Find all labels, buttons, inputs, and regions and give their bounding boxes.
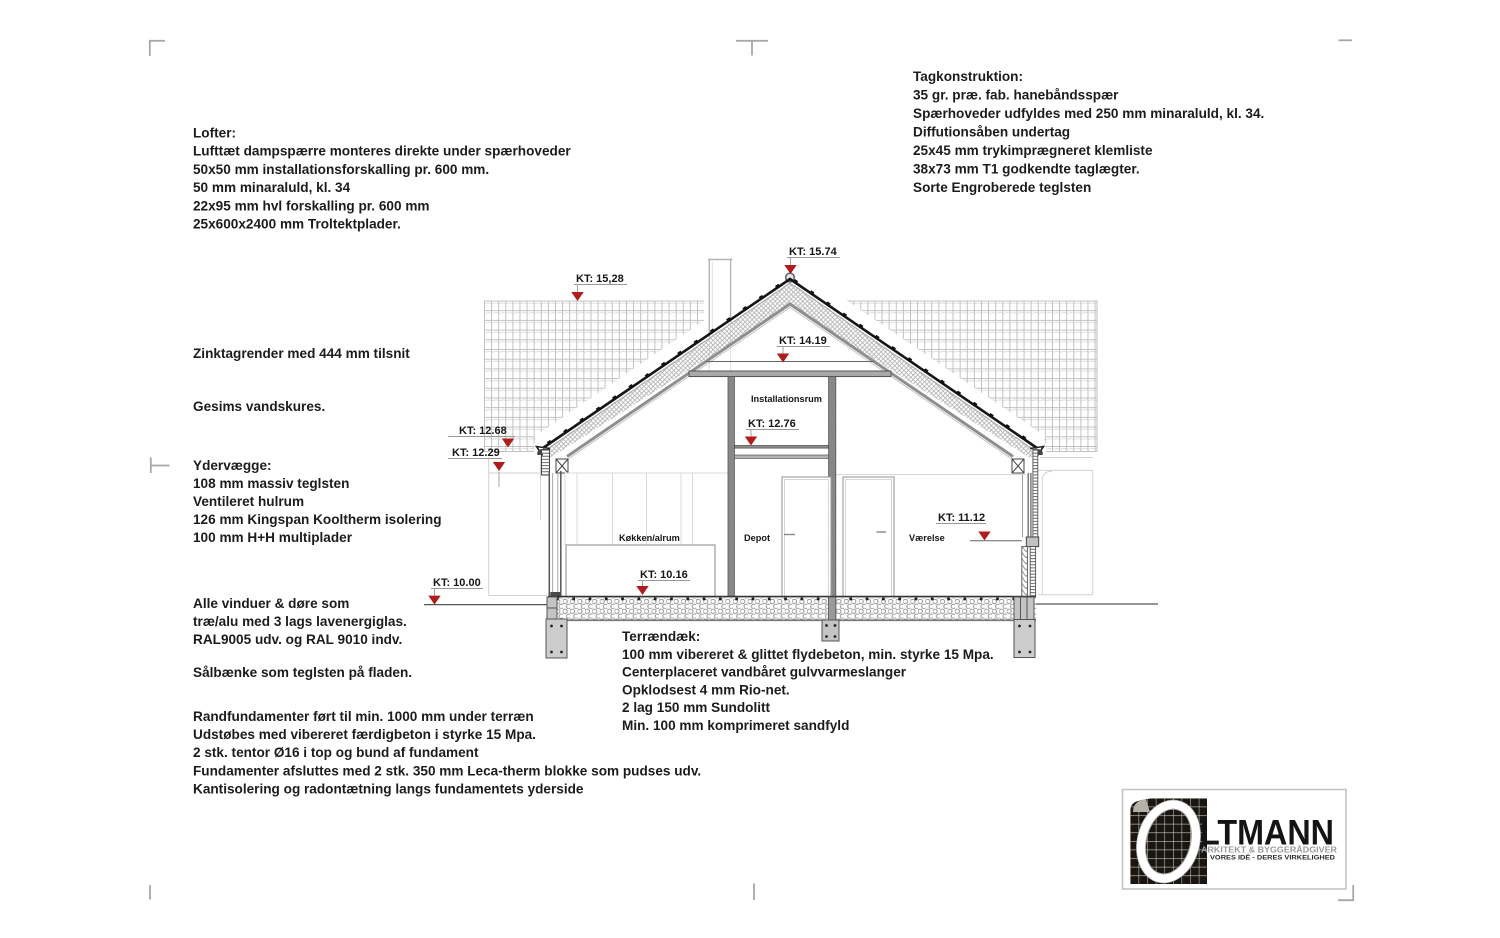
svg-text:35 gr. præ. fab. hanebåndsspær: 35 gr. præ. fab. hanebåndsspær xyxy=(913,88,1119,103)
svg-text:126 mm Kingspan Kooltherm isol: 126 mm Kingspan Kooltherm isolering xyxy=(193,512,442,527)
svg-text:Alle vinduer & døre som: Alle vinduer & døre som xyxy=(193,596,349,611)
svg-text:Spærhoveder udfyldes med 250 m: Spærhoveder udfyldes med 250 mm minaralu… xyxy=(913,106,1264,121)
svg-text:100 mm vibereret & glittet fly: 100 mm vibereret & glittet flydebeton, m… xyxy=(622,647,994,662)
svg-text:Ydervægge:: Ydervægge: xyxy=(193,458,272,473)
svg-text:Centerplaceret vandbåret gulvv: Centerplaceret vandbåret gulvvarmeslange… xyxy=(622,665,907,680)
svg-text:ARKITEKT & BYGGERÅDGIVER: ARKITEKT & BYGGERÅDGIVER xyxy=(1201,845,1338,855)
svg-text:2 stk. tentor Ø16 i top og bun: 2 stk. tentor Ø16 i top og bund af funda… xyxy=(193,745,479,760)
svg-text:50x50 mm installationsforskall: 50x50 mm installationsforskalling pr. 60… xyxy=(193,162,489,177)
svg-text:Lofter:: Lofter: xyxy=(193,126,236,141)
svg-text:Min. 100 mm komprimeret sandfy: Min. 100 mm komprimeret sandfyld xyxy=(622,718,849,733)
svg-text:KT: 12.76: KT: 12.76 xyxy=(748,418,796,430)
svg-text:2 lag 150 mm Sundolitt: 2 lag 150 mm Sundolitt xyxy=(622,700,771,715)
svg-text:Gesims vandskures.: Gesims vandskures. xyxy=(193,399,325,414)
svg-text:Terrændæk:: Terrændæk: xyxy=(622,629,700,644)
svg-text:KT: 12.68: KT: 12.68 xyxy=(459,425,507,437)
svg-text:Udstøbes med vibereret færdigb: Udstøbes med vibereret færdigbeton i sty… xyxy=(193,727,536,742)
svg-text:KT: 15.74: KT: 15.74 xyxy=(789,246,838,258)
svg-text:Ventileret hulrum: Ventileret hulrum xyxy=(193,494,304,509)
svg-text:Fundamenter afsluttes med 2 st: Fundamenter afsluttes med 2 stk. 350 mm … xyxy=(193,763,701,778)
svg-text:Installationsrum: Installationsrum xyxy=(751,394,822,404)
svg-text:Zinktagrender med 444 mm tilsn: Zinktagrender med 444 mm tilsnit xyxy=(193,346,410,361)
svg-text:Værelse: Værelse xyxy=(909,533,945,543)
svg-text:KT: 12.29: KT: 12.29 xyxy=(452,447,500,459)
svg-text:træ/alu med 3 lags lavenergigl: træ/alu med 3 lags lavenergiglas. xyxy=(193,614,407,629)
svg-text:25x45 mm trykimprægneret kleml: 25x45 mm trykimprægneret klemliste xyxy=(913,143,1153,158)
svg-text:KT: 11.12: KT: 11.12 xyxy=(938,512,985,524)
svg-text:Køkken/alrum: Køkken/alrum xyxy=(619,533,680,543)
svg-text:Kantisolering og radontætning: Kantisolering og radontætning langs fund… xyxy=(193,781,584,796)
svg-text:Randfundamenter ført til min.: Randfundamenter ført til min. 1000 mm un… xyxy=(193,709,534,724)
svg-text:KT: 10.00: KT: 10.00 xyxy=(433,577,481,589)
svg-text:Tagkonstruktion:: Tagkonstruktion: xyxy=(913,69,1023,84)
svg-text:100 mm H+H multiplader: 100 mm H+H multiplader xyxy=(193,530,353,545)
svg-text:50 mm minaraluld, kl. 34: 50 mm minaraluld, kl. 34 xyxy=(193,180,351,195)
svg-text:22x95 mm hvl forskalling pr. 6: 22x95 mm hvl forskalling pr. 600 mm xyxy=(193,198,430,213)
svg-text:KT: 14.19: KT: 14.19 xyxy=(779,335,827,347)
svg-text:Opklodsest 4 mm Rio-net.: Opklodsest 4 mm Rio-net. xyxy=(622,682,790,697)
svg-text:RAL9005 udv. og RAL 9010 indv.: RAL9005 udv. og RAL 9010 indv. xyxy=(193,632,402,647)
svg-text:Diffutionsåben undertag: Diffutionsåben undertag xyxy=(913,125,1070,140)
svg-text:Lufttæt dampspærre monteres di: Lufttæt dampspærre monteres direkte unde… xyxy=(193,144,571,159)
svg-text:KT: 10.16: KT: 10.16 xyxy=(640,569,688,581)
svg-text:108 mm massiv teglsten: 108 mm massiv teglsten xyxy=(193,476,349,491)
svg-text:KT: 15,28: KT: 15,28 xyxy=(576,273,624,285)
svg-text:Sålbænke som teglsten på flade: Sålbænke som teglsten på fladen. xyxy=(193,665,412,680)
svg-text:Sorte Engroberede teglsten: Sorte Engroberede teglsten xyxy=(913,180,1091,195)
svg-text:25x600x2400 mm Troltektplader.: 25x600x2400 mm Troltektplader. xyxy=(193,217,401,232)
svg-text:38x73 mm T1 godkendte taglægte: 38x73 mm T1 godkendte taglægter. xyxy=(913,162,1140,177)
svg-text:VORES IDÉ - DERES VIRKELIGHED: VORES IDÉ - DERES VIRKELIGHED xyxy=(1210,853,1335,862)
svg-text:Depot: Depot xyxy=(744,533,770,543)
